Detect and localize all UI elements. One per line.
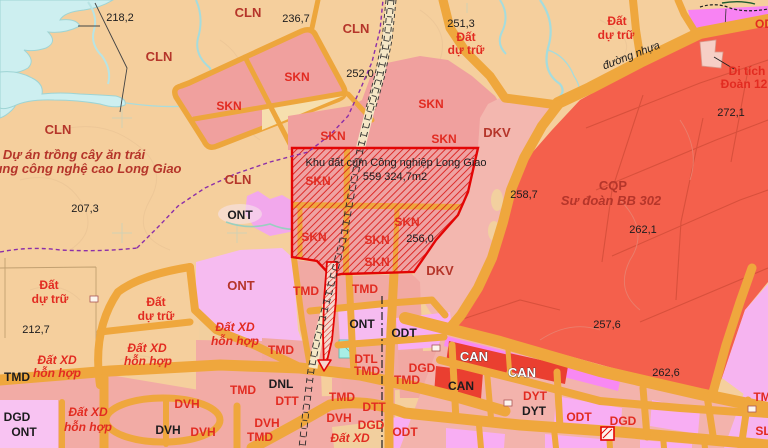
svg-text:Đất XD: Đất XD — [37, 353, 77, 367]
svg-text:Đất XD: Đất XD — [127, 341, 167, 355]
svg-text:ODT: ODT — [566, 410, 592, 424]
svg-text:DKV: DKV — [426, 263, 454, 278]
svg-text:Đất: Đất — [456, 30, 475, 44]
svg-text:257,6: 257,6 — [593, 319, 621, 331]
svg-text:SKN: SKN — [431, 132, 456, 146]
svg-text:DGD: DGD — [358, 418, 385, 432]
svg-text:TMD: TMD — [247, 430, 273, 444]
svg-text:Đất XD: Đất XD — [68, 405, 108, 419]
svg-text:dự trữ: dự trữ — [598, 28, 635, 42]
svg-text:272,1: 272,1 — [717, 107, 745, 119]
svg-text:Đất: Đất — [146, 295, 165, 309]
svg-text:Đoàn 12: Đoàn 12 — [721, 77, 768, 91]
svg-text:ONT: ONT — [11, 425, 37, 439]
svg-text:Khu đất cụm Công nghiệp Long G: Khu đất cụm Công nghiệp Long Giao — [305, 157, 486, 169]
svg-text:DVH: DVH — [174, 397, 199, 411]
svg-text:TMD: TMD — [268, 343, 294, 357]
svg-text:CLN: CLN — [146, 49, 173, 64]
svg-text:TMD: TMD — [293, 284, 319, 298]
svg-text:DVH: DVH — [155, 423, 180, 437]
svg-text:CLN: CLN — [343, 21, 370, 36]
svg-text:SKN: SKN — [418, 97, 443, 111]
svg-text:559 324,7m2: 559 324,7m2 — [363, 171, 427, 183]
svg-text:ODT: ODT — [391, 326, 417, 340]
svg-text:251,3: 251,3 — [447, 18, 475, 30]
svg-text:SKN: SKN — [305, 174, 330, 188]
svg-text:TMD: TMD — [4, 370, 30, 384]
svg-text:Dự án trồng cây ăn trái: Dự án trồng cây ăn trái — [3, 147, 146, 162]
svg-text:ONT: ONT — [349, 317, 375, 331]
svg-text:CAN: CAN — [508, 365, 536, 380]
svg-text:DTT: DTT — [362, 400, 386, 414]
svg-text:DGD: DGD — [610, 414, 637, 428]
svg-text:DVH: DVH — [326, 411, 351, 425]
svg-text:dụng công nghệ cao Long Giao: dụng công nghệ cao Long Giao — [0, 161, 182, 176]
svg-text:TM: TM — [753, 390, 768, 404]
svg-text:DVH: DVH — [190, 425, 215, 439]
svg-text:CQP: CQP — [599, 178, 628, 193]
svg-text:SL: SL — [755, 424, 768, 438]
svg-text:dự trữ: dự trữ — [32, 292, 69, 306]
svg-text:Đất XD: Đất XD — [330, 431, 370, 445]
svg-text:hỗn hợp: hỗn hợp — [211, 333, 259, 348]
svg-text:Đất: Đất — [39, 278, 58, 292]
svg-text:SKN: SKN — [394, 215, 419, 229]
svg-text:SKN: SKN — [284, 70, 309, 84]
svg-text:CAN: CAN — [460, 349, 488, 364]
svg-text:Di tích: Di tích — [729, 64, 766, 78]
svg-text:hỗn hợp: hỗn hợp — [124, 353, 172, 368]
svg-text:hỗn hợp: hỗn hợp — [33, 365, 81, 380]
svg-text:DKV: DKV — [483, 125, 511, 140]
svg-text:dự trữ: dự trữ — [448, 43, 485, 57]
svg-text:DTT: DTT — [275, 394, 299, 408]
svg-text:SKN: SKN — [301, 230, 326, 244]
svg-text:TMD: TMD — [352, 282, 378, 296]
svg-text:212,7: 212,7 — [22, 324, 50, 336]
svg-text:Đất XD: Đất XD — [215, 320, 255, 334]
svg-text:SKN: SKN — [364, 233, 389, 247]
svg-text:207,3: 207,3 — [71, 203, 99, 215]
svg-text:DNL: DNL — [269, 377, 294, 391]
svg-text:DYT: DYT — [522, 404, 547, 418]
svg-text:ODT: ODT — [392, 425, 418, 439]
svg-text:218,2: 218,2 — [106, 12, 134, 24]
svg-text:dự trữ: dự trữ — [138, 309, 175, 323]
svg-text:262,6: 262,6 — [652, 367, 680, 379]
svg-text:DYT: DYT — [523, 389, 548, 403]
svg-text:CAN: CAN — [448, 379, 474, 393]
svg-text:CLN: CLN — [235, 5, 262, 20]
svg-text:TMD: TMD — [354, 364, 380, 378]
svg-text:hỗn hợp: hỗn hợp — [64, 419, 112, 434]
svg-text:CLN: CLN — [225, 172, 252, 187]
svg-text:CLN: CLN — [45, 122, 72, 137]
svg-text:DVH: DVH — [254, 416, 279, 430]
svg-text:SKN: SKN — [364, 255, 389, 269]
svg-text:252,0: 252,0 — [346, 68, 374, 80]
svg-text:262,1: 262,1 — [629, 224, 657, 236]
svg-text:236,7: 236,7 — [282, 13, 310, 25]
svg-text:SKN: SKN — [216, 99, 241, 113]
svg-text:DGD: DGD — [4, 410, 31, 424]
svg-text:SKN: SKN — [320, 129, 345, 143]
svg-text:256,0: 256,0 — [406, 233, 434, 245]
svg-text:OD: OD — [755, 17, 768, 31]
svg-text:TMD: TMD — [329, 390, 355, 404]
svg-text:TMD: TMD — [394, 373, 420, 387]
svg-text:ONT: ONT — [227, 208, 253, 222]
svg-text:TMD: TMD — [230, 383, 256, 397]
svg-text:Sư đoàn BB 302: Sư đoàn BB 302 — [561, 193, 662, 208]
svg-text:258,7: 258,7 — [510, 189, 538, 201]
svg-text:Đất: Đất — [607, 14, 626, 28]
svg-text:ONT: ONT — [227, 278, 255, 293]
